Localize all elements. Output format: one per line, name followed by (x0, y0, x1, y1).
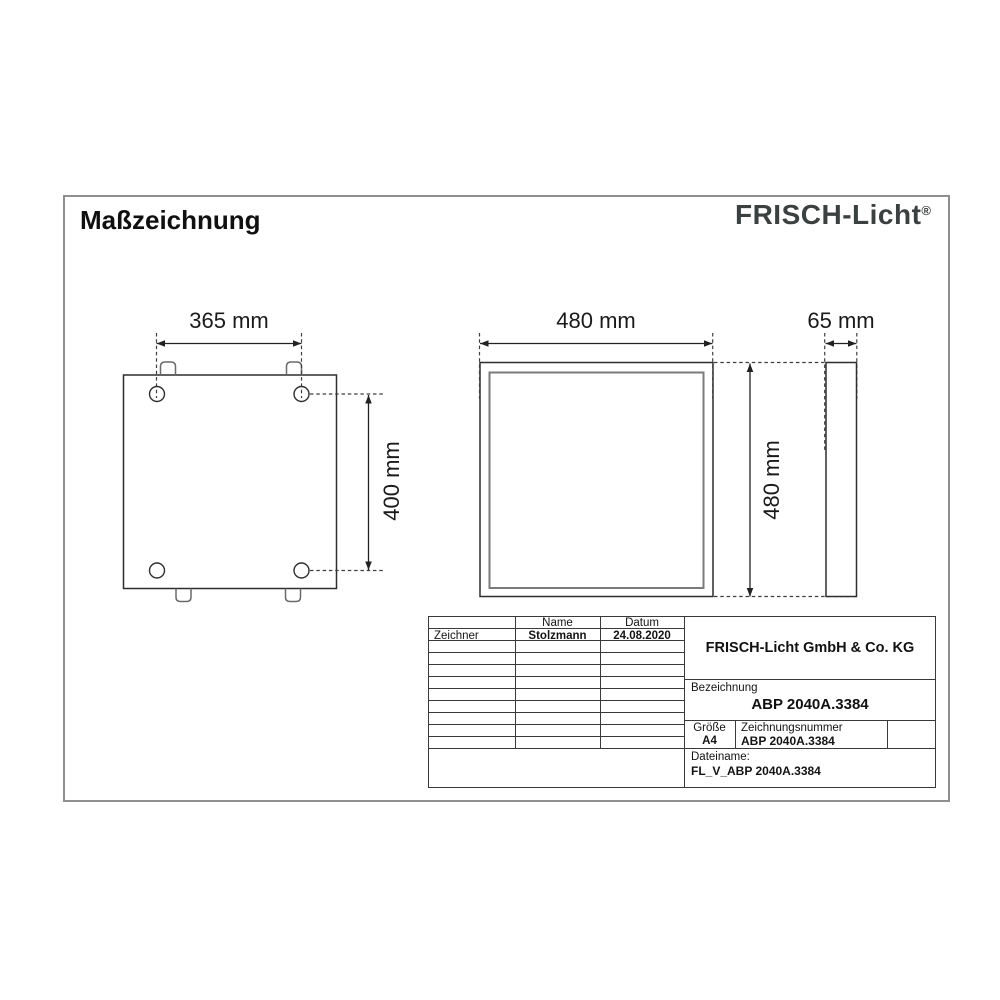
brand-text: FRISCH-Licht (735, 199, 921, 230)
bezeichnung-label: Bezeichnung (691, 682, 758, 694)
zeichner-name: Stolzmann (515, 630, 600, 642)
dateiname-value: FL_V_ABP 2040A.3384 (691, 765, 821, 777)
zeichner-label: Zeichner (434, 630, 479, 642)
col-header-datum: Datum (600, 617, 684, 629)
zeichnungsnummer-value: ABP 2040A.3384 (741, 735, 835, 747)
zeichnungsnummer-label: Zeichnungsnummer (741, 722, 843, 734)
groesse-label: Größe (684, 722, 735, 734)
page-title: Maßzeichnung (80, 205, 261, 236)
registered-trademark-icon: ® (921, 203, 931, 218)
drawing-sheet: Maßzeichnung FRISCH-Licht® (0, 0, 1000, 1000)
groesse-value: A4 (684, 735, 735, 747)
company-name: FRISCH-Licht GmbH & Co. KG (684, 616, 936, 679)
zeichner-datum: 24.08.2020 (600, 630, 684, 642)
bezeichnung-value: ABP 2040A.3384 (684, 696, 936, 713)
col-header-name: Name (515, 617, 600, 629)
brand-logo: FRISCH-Licht® (735, 199, 931, 231)
dateiname-label: Dateiname: (691, 751, 750, 763)
